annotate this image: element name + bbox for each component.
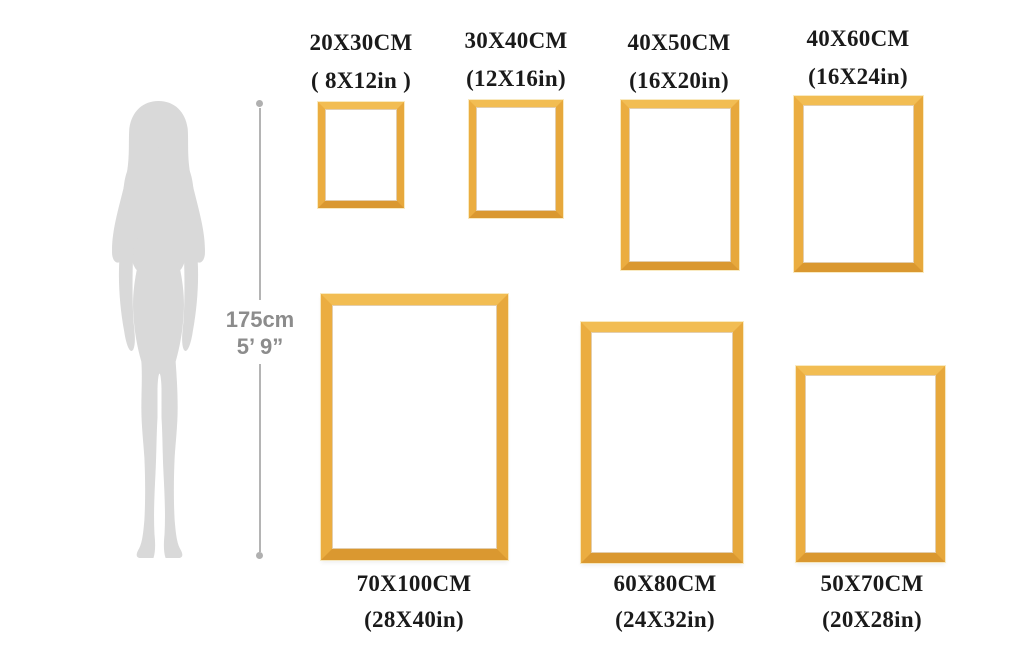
size-chart: 175cm 5’ 9” 20X30CM ( 8X12in ) 30X40CM (… <box>0 0 1024 664</box>
frame-70x100-size-cm: 70X100CM <box>357 571 472 597</box>
frame-30x40-size-in: (12X16in) <box>466 66 566 92</box>
frame-20x30-size-in: ( 8X12in ) <box>311 68 411 94</box>
frame-40x50-size-in: (16X20in) <box>629 68 729 94</box>
frame-50x70 <box>796 366 945 562</box>
height-ft: 5’ 9” <box>226 333 295 360</box>
frame-60x80-size-in: (24X32in) <box>615 607 715 633</box>
woman-body <box>132 147 185 558</box>
frame-50x70-size-in: (20X28in) <box>822 607 922 633</box>
frame-20x30 <box>318 102 404 208</box>
frame-40x60-size-cm: 40X60CM <box>806 26 909 52</box>
ruler-bottom-dot <box>256 552 263 559</box>
frame-40x60-size-in: (16X24in) <box>808 64 908 90</box>
ruler-line-lower <box>259 364 261 552</box>
height-cm: 175cm <box>226 306 295 333</box>
frame-60x80-size-cm: 60X80CM <box>613 571 716 597</box>
frame-20x30-size-cm: 20X30CM <box>309 30 412 56</box>
frame-30x40 <box>469 100 563 218</box>
frame-50x70-size-cm: 50X70CM <box>820 571 923 597</box>
ruler-line-upper <box>259 108 261 300</box>
frame-40x50-size-cm: 40X50CM <box>627 30 730 56</box>
frame-40x50 <box>621 100 739 270</box>
woman-silhouette <box>99 99 218 560</box>
frame-60x80 <box>581 322 743 563</box>
frame-70x100 <box>321 294 508 560</box>
ruler-top-dot <box>256 100 263 107</box>
frame-30x40-size-cm: 30X40CM <box>464 28 567 54</box>
height-label: 175cm 5’ 9” <box>226 306 295 360</box>
frame-70x100-size-in: (28X40in) <box>364 607 464 633</box>
frame-40x60 <box>794 96 923 272</box>
